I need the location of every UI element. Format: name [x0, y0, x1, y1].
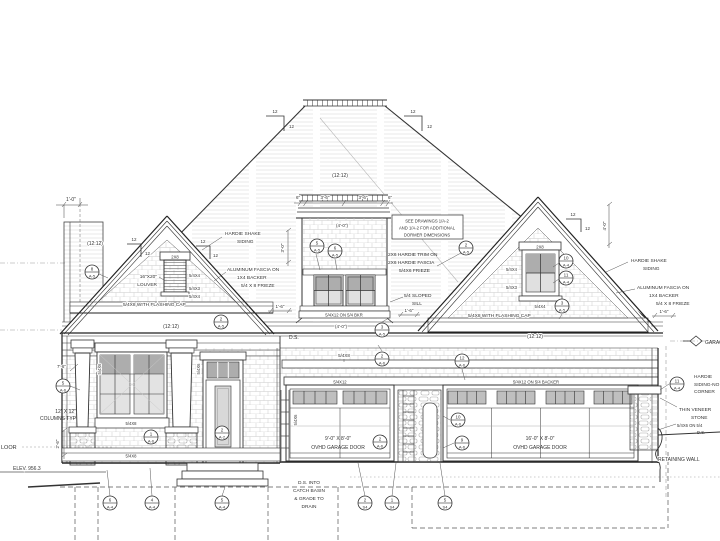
callout-sheet: A-6 — [459, 445, 466, 450]
dim-6in: 6" — [388, 195, 393, 200]
callout-num: 11 — [564, 273, 569, 278]
callout-sheet: A-5 — [218, 324, 225, 329]
callout-6-A4: 6A-4 — [103, 496, 117, 510]
callout-sheet: A-4 — [219, 505, 226, 510]
downspout-label: D.S. — [289, 335, 299, 341]
callout-sheet: A-4 — [674, 386, 681, 391]
dormer-band-label: 5/4X12 ON 5/4 BKR — [325, 313, 362, 318]
apron-548: 5/4X8 — [126, 421, 138, 426]
pitch-12: 12 — [200, 239, 206, 244]
dim-1-6: 1'-6" — [405, 308, 414, 313]
ds-note-1: D.S. INTO — [298, 480, 320, 486]
callout-sheet: A-5 — [379, 332, 386, 337]
trim-546-v: 5/4X6 — [196, 363, 201, 375]
porch-window — [95, 343, 169, 428]
base-548: 5/4X8 — [126, 454, 138, 459]
hardie-shake-right-1: HARDIE SHAKE — [631, 258, 667, 264]
pitch-12: 12 — [410, 109, 416, 114]
center-pier — [398, 390, 441, 462]
callout-2-A6: 2A-6 — [375, 352, 389, 366]
pitch-12: 12 — [131, 237, 137, 242]
callout-sheet: A-4 — [107, 505, 114, 510]
callout-sheet: A-5 — [559, 308, 566, 313]
callout-11-A4: 11A-4 — [559, 271, 573, 285]
callout-sheet: S4 — [363, 505, 369, 510]
dim-2-6-v: 2'-6" — [55, 439, 60, 448]
dim-6in: 6" — [296, 195, 301, 200]
callout-sheet: A-4 — [149, 505, 156, 510]
trim-note-1: 2X6 HARDIE TRIM ON — [388, 252, 438, 258]
pitch-12: 12 — [289, 124, 295, 129]
dim-4-0-a: (4'-0") — [336, 223, 348, 228]
dim-4-0-b: (4'-0") — [335, 324, 347, 329]
corner-note-2: SIDING-NO — [694, 382, 720, 388]
columns-note-2: COLUMNS TYP — [40, 416, 77, 422]
corner-note-1: HARDIE — [694, 374, 712, 380]
trim-544: 5/4X4 — [535, 304, 547, 309]
band-548: 5/4X8 — [338, 353, 350, 358]
slope-left-upper: (12:12) — [87, 241, 103, 247]
gable-window — [519, 242, 562, 301]
callout-sheet: S4 — [390, 505, 396, 510]
slope-main: (12:12) — [332, 173, 348, 179]
callout-1-S4: 1S4 — [385, 496, 399, 510]
door-steps — [177, 463, 268, 486]
callout-11-A4b: 11A-4 — [670, 377, 684, 391]
callout-num: 12 — [459, 356, 465, 361]
dim-1-0: 1'-0" — [66, 197, 76, 203]
corner-note-3: CORNER — [694, 389, 715, 395]
trim-546-v: 5/4X6 — [293, 414, 298, 426]
callout-3-A5b: 3A-5 — [375, 323, 389, 337]
alum-fascia-right-3: 5/4 X 8 FRIEZE — [656, 301, 690, 307]
sloped-sill-2: SILL — [412, 301, 422, 307]
callout-10-A4: 10A-4 — [559, 254, 573, 268]
trim-note-2: 2X6 HARDIE FASCIA — [388, 260, 435, 266]
trim-note-3: 5/4X6 FRIEZE — [399, 268, 430, 274]
flashing-cap-left: 5/4X8 WITH FLASHING CAP — [123, 302, 186, 308]
callout-2-A2: 2A-2 — [215, 426, 229, 440]
louver-size-1: 16"X20" — [140, 274, 158, 280]
dormer — [294, 194, 393, 323]
callout-10-A6: 10A-6 — [451, 413, 465, 427]
dormer-note-line1: SEE DRAWINGS 1/A-2 — [405, 219, 449, 224]
callout-4-A4: 4A-4 — [145, 496, 159, 510]
ds-note-4: DRAIN — [302, 504, 317, 510]
pitch-12: 12 — [145, 251, 151, 256]
right-stone-pier — [628, 386, 720, 482]
garage-marker-label: GARAGE — [705, 340, 720, 346]
porch — [62, 333, 280, 486]
floor-level-label: LOOR — [1, 445, 17, 451]
callout-sheet: A-5 — [89, 274, 96, 279]
dim-3-6: 3'-6" — [321, 195, 330, 200]
hardie-shake-left-1: HARDIE SHAKE — [225, 231, 261, 237]
flashing-cap-right: 5/4X8 WITH FLASHING CAP — [468, 313, 531, 319]
louver-size-2: LOUVER — [137, 282, 157, 288]
callout-2-A5b: 2A-5 — [459, 241, 473, 255]
callout-2-A6b: 2A-6 — [373, 435, 387, 449]
thin-veneer-1: THIN VENEER — [679, 407, 712, 413]
pitch-12: 12 — [272, 109, 278, 114]
callout-num: 10 — [455, 415, 461, 420]
callout-5-A4: 5A-4 — [215, 496, 229, 510]
dormer-window-right — [346, 275, 375, 306]
thin-veneer-2: STONE — [691, 415, 707, 421]
callout-5-A5: 5A-5 — [310, 239, 324, 253]
garage-door-left-size: 9'-0" X 8'-0" — [325, 436, 351, 442]
alum-fascia-right-1: ALUMINUM FASCIA ON — [637, 285, 690, 291]
hardie-shake-right-2: SIDING — [643, 266, 660, 272]
callout-12-A6: 12A-6 — [455, 354, 469, 368]
trim-544: 5/4X4 — [189, 294, 201, 299]
callout-sheet: A-6 — [148, 439, 155, 444]
callout-sheet: A-5 — [463, 250, 470, 255]
pier-plaque — [423, 403, 437, 458]
retaining-wall-label: RETAINING WALL — [658, 457, 700, 463]
callout-sheet: A-2 — [219, 435, 226, 440]
dormer-note-line3: DORMER DIMENSIONS — [404, 233, 451, 238]
elev-datum: ELEV. 956.3 — [13, 466, 41, 472]
downspout-right: D.S. — [697, 430, 705, 435]
columns-note-1: 12" X 12" — [55, 409, 76, 415]
callout-sheet: A-5 — [314, 248, 321, 253]
garage-door-right-size: 16'-0" X 8'-0" — [526, 436, 555, 442]
callout-9-A6: 9A-6 — [455, 436, 469, 450]
callout-5-S4: 5S4 — [438, 496, 452, 510]
callout-1-A6: 1A-6 — [144, 430, 158, 444]
sloped-sill-1: 5/4 SLOPED — [404, 293, 432, 299]
alum-fascia-right-2: 1X4 BACKER — [649, 293, 679, 299]
callout-sheet: A-6 — [455, 422, 462, 427]
callout-sheet: A-5 — [332, 253, 339, 258]
pitch-12: 12 — [427, 124, 433, 129]
dim-7-6: 7'-6" — [57, 364, 66, 369]
pitch-12: 12 — [585, 226, 591, 231]
front-elevation-drawing: SEE DRAWINGS 1/A-2 AND 1/A-2 FOR ADDITIO… — [0, 0, 720, 541]
pitch-12: 12 — [213, 253, 219, 258]
alum-fascia-left-3: 5/4 X 8 FRIEZE — [241, 283, 275, 289]
dim-1-6: 1'-6" — [276, 304, 285, 309]
callout-sheet: A-6 — [459, 363, 466, 368]
callout-sheet: A-6 — [60, 388, 67, 393]
slope-right-lower: (12:12) — [527, 334, 543, 340]
ds-note-2: CATCH BASIN — [293, 488, 325, 494]
garage-door-left-type: OVHD GARAGE DOOR — [311, 445, 365, 451]
ds-note-3: & GRADE TO — [294, 496, 324, 502]
callout-sheet: A-6 — [379, 361, 386, 366]
callout-sheet: A-4 — [563, 280, 570, 285]
trim-543: 5/4X3 — [506, 285, 518, 290]
callout-sheet: A-6 — [377, 444, 384, 449]
callout-sheet: S4 — [443, 505, 449, 510]
dim-3-6: 3'-6" — [359, 195, 368, 200]
band-5412: 5/4X12 — [333, 380, 347, 385]
callout-2-S4: 2S4 — [358, 496, 372, 510]
pitch-12: 12 — [570, 212, 576, 217]
trim-544: 5/4X4 — [506, 267, 518, 272]
callout-num: 11 — [675, 379, 680, 384]
louver-header: 2X8 — [171, 255, 179, 260]
callout-8-A5: 8A-5 — [85, 265, 99, 279]
trim-544: 5/4X4 — [189, 273, 201, 278]
trim-543: 5/4X3 — [189, 286, 201, 291]
grade-line-right — [658, 432, 720, 435]
callout-num: 10 — [563, 256, 569, 261]
callout-sheet: A-4 — [563, 263, 570, 268]
alum-fascia-left-1: ALUMINUM FASCIA ON — [227, 267, 280, 273]
slope-left-lower: (12:12) — [163, 324, 179, 330]
hardie-shake-left-2: SIDING — [237, 239, 254, 245]
stone-backer: 5/4X6 ON 5/4 — [677, 423, 703, 428]
dormer-note-line2: AND 1/A-2 FOR ADDITIONAL — [399, 226, 456, 231]
elevation-sheet: SEE DRAWINGS 1/A-2 AND 1/A-2 FOR ADDITIO… — [0, 0, 720, 541]
callout-6-A5: 6A-5 — [328, 244, 342, 258]
dim-4-0-v: 4'-0" — [602, 221, 607, 230]
alum-fascia-left-2: 1X4 BACKER — [237, 275, 267, 281]
callout-3-A5: 3A-5 — [555, 299, 569, 313]
dim-3-0-v: 3'-0" — [280, 243, 285, 252]
callout-5-A6: 5A-6 — [56, 379, 70, 393]
grade-line-left — [28, 483, 100, 487]
callout-2-A5: 2A-5 — [214, 315, 228, 329]
trim-546-v: 5/4X6 — [97, 363, 102, 375]
band-backer: 5/4X12 ON 5/4 BACKER — [513, 380, 559, 385]
window-header: 2X8 — [536, 245, 544, 250]
dormer-note-box: SEE DRAWINGS 1/A-2 AND 1/A-2 FOR ADDITIO… — [392, 215, 463, 239]
garage-door-right-type: OVHD GARAGE DOOR — [513, 445, 567, 451]
dormer-window-left — [314, 275, 343, 306]
dim-1-6: 1'-6" — [660, 309, 669, 314]
